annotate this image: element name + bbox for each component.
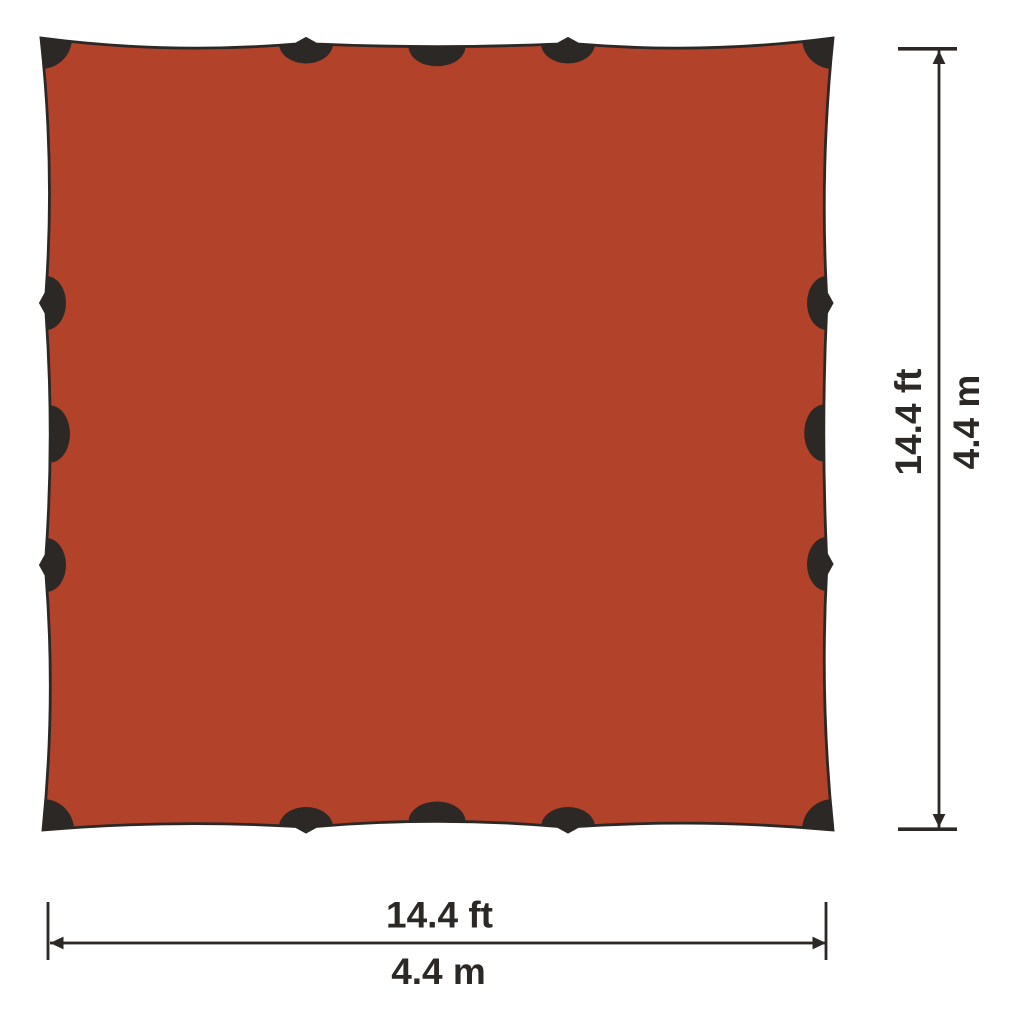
svg-text:4.4 m: 4.4 m [946, 375, 987, 470]
svg-text:14.4 ft: 14.4 ft [888, 369, 929, 476]
svg-text:4.4 m: 4.4 m [391, 951, 486, 992]
svg-text:14.4 ft: 14.4 ft [386, 895, 493, 936]
